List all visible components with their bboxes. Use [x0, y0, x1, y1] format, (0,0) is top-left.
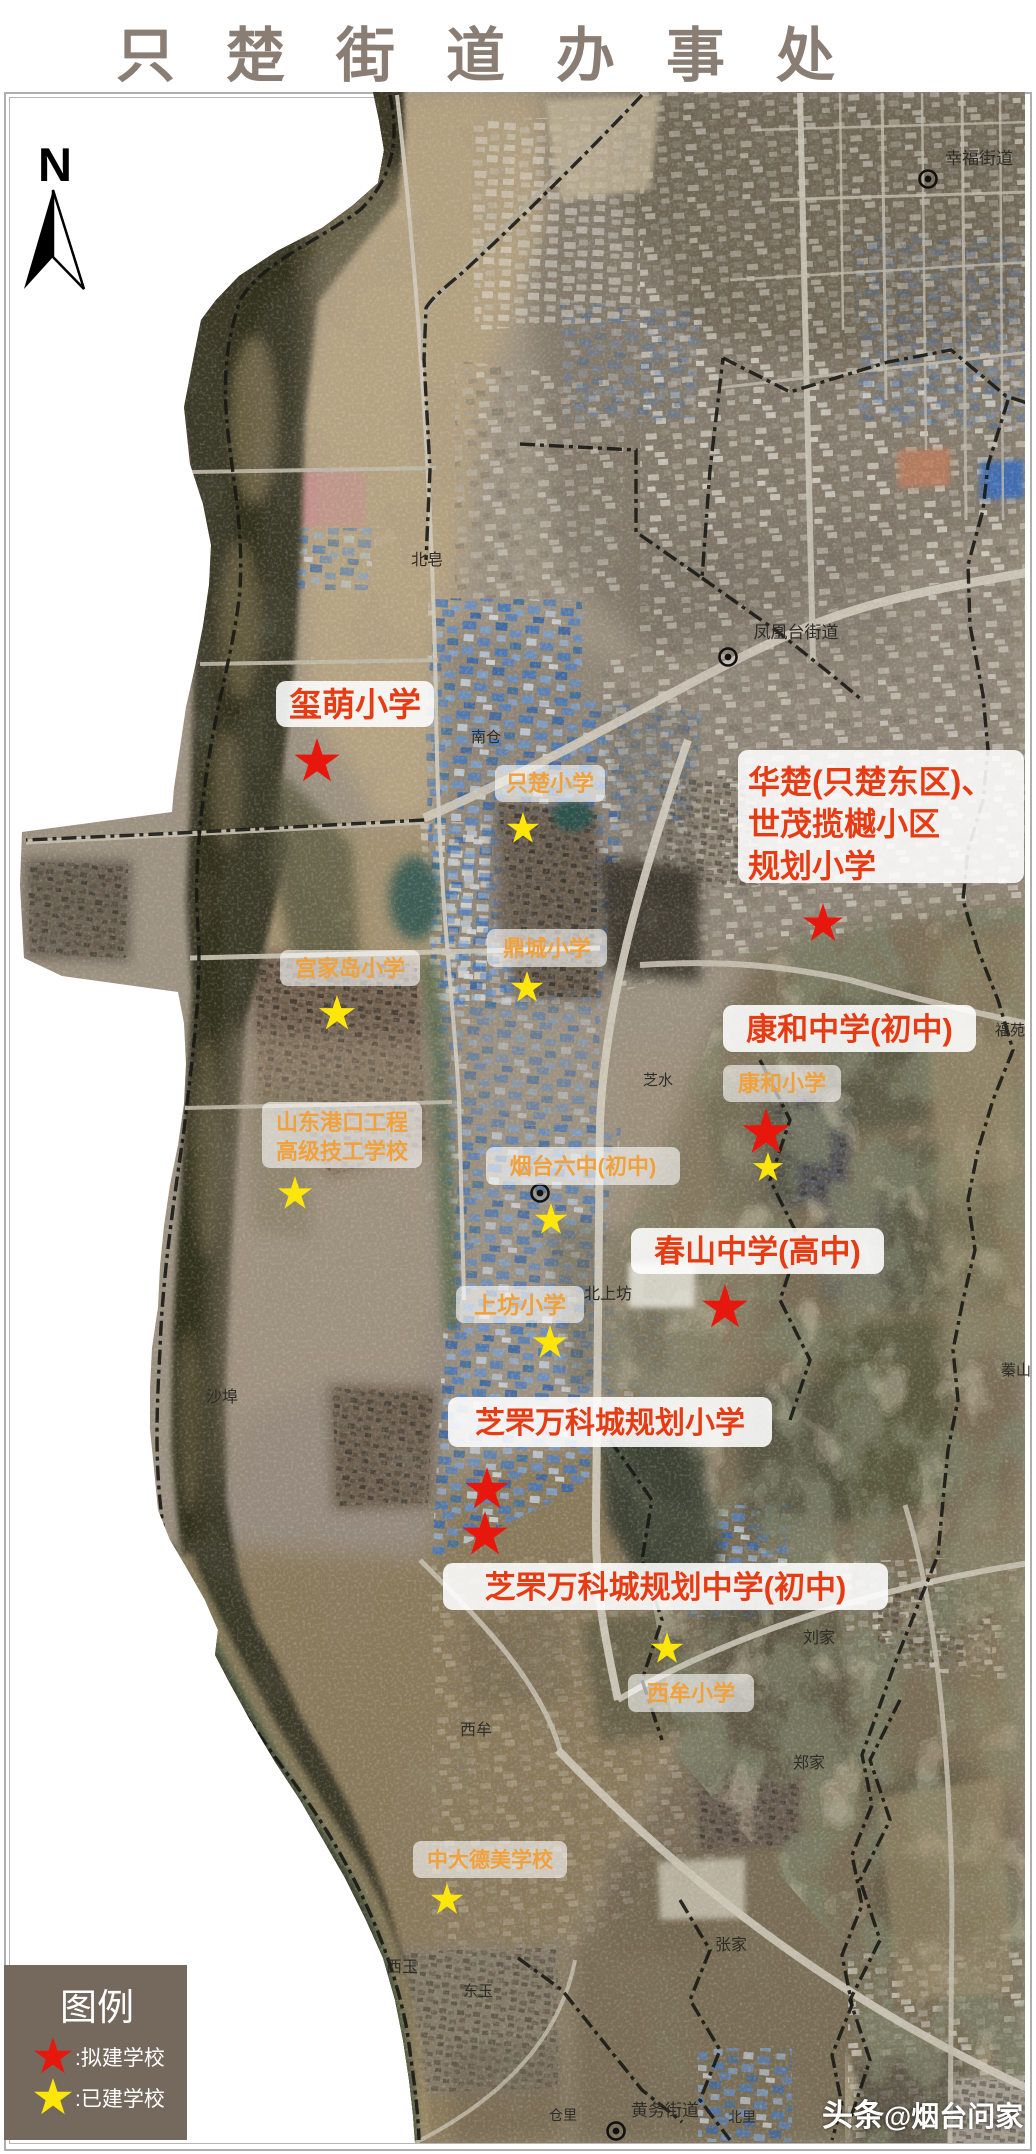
svg-text:康和中学(初中): 康和中学(初中) [746, 1012, 953, 1047]
svg-text:芝罘万科城规划小学: 芝罘万科城规划小学 [475, 1406, 745, 1440]
svg-text:张家: 张家 [715, 1936, 747, 1954]
svg-text:烟台六中(初中): 烟台六中(初中) [510, 1154, 657, 1179]
svg-text:春山中学(高中): 春山中学(高中) [654, 1234, 861, 1269]
svg-text:高级技工学校: 高级技工学校 [276, 1139, 409, 1164]
svg-text:世茂揽樾小区: 世茂揽樾小区 [748, 806, 940, 842]
svg-text:郑家: 郑家 [793, 1754, 825, 1772]
svg-text:上坊小学: 上坊小学 [474, 1292, 566, 1318]
svg-text:华楚(只楚东区)、: 华楚(只楚东区)、 [748, 764, 993, 800]
svg-text:芝罘万科城规划中学(初中): 芝罘万科城规划中学(初中) [485, 1570, 847, 1605]
svg-text:图例: 图例 [60, 1987, 134, 2028]
svg-text:南仓: 南仓 [471, 729, 501, 746]
svg-text:头条: 头条 [822, 2098, 884, 2133]
svg-text:蓁山: 蓁山 [1001, 1362, 1031, 1379]
svg-text:福苑: 福苑 [995, 1022, 1025, 1039]
svg-text:康和小学: 康和小学 [738, 1071, 826, 1096]
svg-text:北皂: 北皂 [411, 551, 443, 569]
svg-text:凤凰台街道: 凤凰台街道 [754, 623, 839, 642]
svg-text:幸福街道: 幸福街道 [945, 149, 1013, 168]
svg-text:黄务街道: 黄务街道 [631, 2101, 699, 2120]
svg-text:北上坊: 北上坊 [584, 1285, 632, 1303]
svg-text:仓里: 仓里 [549, 2108, 577, 2124]
svg-text:N: N [38, 138, 72, 191]
svg-text:刘家: 刘家 [803, 1629, 835, 1647]
svg-text:西牟小学: 西牟小学 [647, 1681, 735, 1706]
svg-text:宫家岛小学: 宫家岛小学 [295, 956, 405, 981]
svg-text::拟建学校: :拟建学校 [75, 2047, 165, 2070]
svg-text:鼎城小学: 鼎城小学 [503, 936, 591, 961]
svg-text:只楚小学: 只楚小学 [506, 771, 594, 796]
svg-text:玺萌小学: 玺萌小学 [289, 686, 421, 723]
svg-text:中大德美学校: 中大德美学校 [427, 1848, 554, 1872]
svg-text:沙埠: 沙埠 [206, 1388, 238, 1406]
svg-text:山东港口工程: 山东港口工程 [276, 1110, 408, 1135]
svg-text:东玉: 东玉 [463, 1983, 493, 2000]
svg-text:芝水: 芝水 [643, 1072, 673, 1089]
svg-text:西玉: 西玉 [386, 1959, 418, 1976]
svg-text:西牟: 西牟 [460, 1721, 492, 1739]
svg-text:北里: 北里 [728, 2110, 756, 2126]
svg-text::已建学校: :已建学校 [75, 2088, 165, 2111]
svg-text:规划小学: 规划小学 [748, 848, 876, 884]
svg-text:@烟台问家: @烟台问家 [884, 2100, 1023, 2132]
